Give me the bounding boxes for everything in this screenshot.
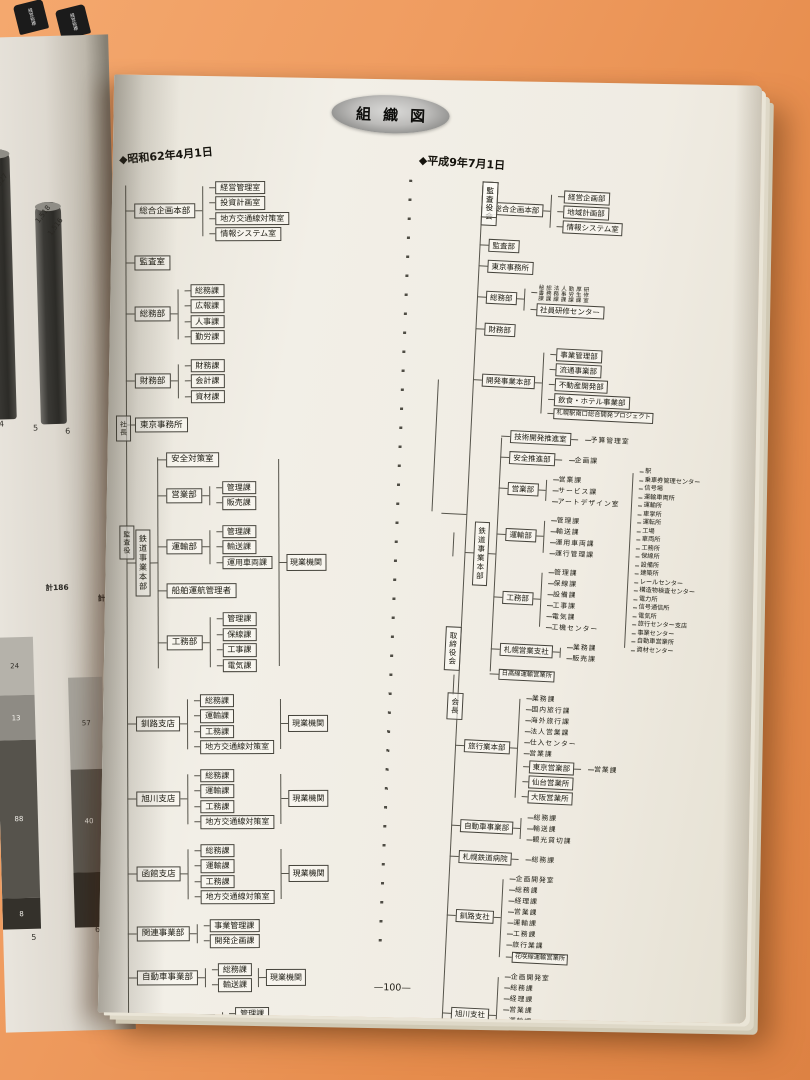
org-row: 旭川支店総務課運輸課工務課地方交通線対策室現業機関 [127, 767, 328, 830]
connector [170, 313, 177, 314]
connector [195, 210, 202, 211]
org-node: 旭川支店総務課運輸課工務課地方交通線対策室現業機関 [136, 767, 328, 830]
org-children: 管理課保線課設備課工事課電気課工機センター [538, 566, 601, 635]
org-row: 函館支店総務課運輸課工務課地方交通線対策室現業機関 [127, 842, 328, 905]
org-child-row: 保線課 [547, 579, 600, 591]
org-unit-label: 工事課 [222, 643, 256, 657]
org-child-row: 保線課 [216, 628, 256, 642]
executive-box: 監査役 [481, 181, 499, 217]
org-unit-label: 総務課 [218, 963, 252, 977]
org-unit-label: 研修室 [235, 1022, 269, 1024]
org-child-row: 地方交通線対策室 [194, 815, 274, 829]
org-node: 社員研修センター管理課研修室 [137, 1006, 269, 1024]
org-unit-label: 保線課 [222, 628, 256, 642]
org-child-row: 運輸課 [502, 1016, 571, 1024]
org-node: 開発事業本部事業管理部流通事業部不動産開発部飲食・ホテル事業部札幌駅南口総合開発… [480, 343, 657, 424]
org-group: 鉄道事業本部安全対策室営業部管理課販売課運輸部管理課輸送課運用車両課船舶運航管理… [135, 445, 326, 680]
org-row: 営業部営業課サービス課アートデザイン室 [498, 471, 621, 510]
org-child-row: 運輸課 [507, 918, 570, 930]
org-node: 安全推進部企画課 [509, 451, 598, 468]
connector [281, 798, 288, 799]
executive-box: 社長 [116, 416, 131, 442]
org-unit-label: 電気課 [552, 612, 576, 622]
org-child-row: 花咲線運輸営業所 [506, 951, 569, 965]
org-unit-label: 広報課 [190, 299, 224, 313]
org-node: 社員研修センター [536, 303, 605, 319]
org-row: 船舶運航管理者 [158, 583, 237, 598]
org-box: 安全対策室 [166, 452, 219, 467]
org-box: 財務部 [484, 322, 515, 336]
org-row: 鉄道事業本部安全対策室営業部管理課販売課運輸部管理課輸送課運用車両課船舶運航管理… [126, 445, 326, 680]
org-child-row: 総務課 [194, 694, 274, 708]
org-child-row: 大阪営業所 [521, 790, 616, 808]
org-chart-1997: 取締役会会長社長取締役監査役会監査役 総合企画本部経営企画部地域計画部情報システ… [381, 179, 763, 1024]
org-children: 管理課販売課 [209, 480, 256, 511]
org-children: 秘書課総務課法務課人事課勤労課厚生課研修室社員研修センター [523, 283, 606, 320]
org-unit-label: 経営管理室 [215, 181, 265, 195]
org-unit-label: 資材課 [190, 390, 224, 404]
org-box: 釧路支店 [136, 716, 180, 731]
org-children: 営業課 [581, 763, 618, 776]
org-node: 日高線運輸営業所 [498, 668, 555, 682]
org-unit-label: 運輸課 [201, 859, 235, 873]
org-child-row: 勤労課 [184, 330, 224, 344]
org-box: 地域計画部 [563, 205, 609, 220]
org-row: 関連事業部事業管理課開発企画課 [128, 918, 260, 949]
org-row: 監査室 [125, 255, 170, 270]
org-child-row: 予算管理室 [584, 435, 629, 446]
connector [150, 562, 157, 563]
org-unit-label: 人事課 [559, 285, 566, 302]
org-box: 流通事業部 [555, 363, 601, 378]
org-unit-label: 営業課 [509, 1005, 533, 1015]
org-chart-1987: 社長監査役 総合企画本部経営管理室投資計画室地方交通線対策室情報システム室監査室… [125, 173, 396, 1024]
org-row: 総合企画本部経営企画部地域計画部情報システム室 [480, 185, 624, 237]
chart-1987-header: ◆昭和62年4月1日 [118, 143, 213, 167]
org-children: 総務課運輸課工務課地方交通線対策室 [187, 842, 281, 904]
org-box: 旭川支店 [136, 791, 180, 806]
org-unit-label: 運行管理課 [555, 549, 594, 560]
org-box: 開発事業本部 [482, 373, 536, 389]
org-children: 事業管理部流通事業部不動産開発部飲食・ホテル事業部札幌駅南口総合開発プロジェクト [540, 346, 657, 424]
org-box: 東京事務所 [487, 260, 533, 275]
org-row: 開発事業本部事業管理部流通事業部不動産開発部飲食・ホテル事業部札幌駅南口総合開発… [471, 343, 657, 425]
org-child-row: 総務課 [194, 769, 274, 783]
org-child-row: 経営企画部 [558, 190, 625, 206]
org-node: 旅行業本部業務課国内旅行課海外旅行課法人営業課仕入センター営業課東京営業部営業課… [461, 690, 621, 808]
stacked-bar: 24 13 88 8 [0, 637, 41, 930]
org-child-row: 運輸課 [195, 859, 275, 873]
photo-background: 経営指標 経営指標 1,540 1,527 1,518 1,516 4 5 6 … [0, 0, 810, 1080]
org-children: 事業管理課開発企画課 [196, 918, 259, 949]
org-node: 監査室 [134, 255, 170, 270]
org-children: 業務課販売課 [559, 641, 596, 665]
org-node: 情報システム室 [562, 220, 623, 236]
org-unit-label: 工務課 [201, 875, 235, 889]
org-box: 東京事務所 [135, 417, 188, 432]
org-child-row: 財務課 [184, 359, 224, 373]
org-node: 監査部 [488, 239, 519, 253]
org-row: 自動車事業部総務課輸送課観光貸切課 [450, 808, 572, 847]
org-child-row: 電気課 [216, 659, 256, 673]
org-box: 監査部 [488, 239, 519, 253]
org-node: 大阪営業所 [527, 790, 573, 805]
org-node: 工務部管理課保線課工事課電気課 [167, 611, 257, 673]
org-node: 総合企画本部経営企画部地域計画部情報システム室 [489, 186, 624, 237]
org-box: 運輸部 [166, 540, 202, 555]
org-node: 不動産開発部 [555, 378, 609, 394]
org-child-row: 業務課 [567, 643, 597, 653]
org-child-row: 工事課 [546, 601, 599, 613]
org-row: 営業部管理課販売課 [157, 480, 256, 511]
org-unit-label: 総務課 [510, 983, 534, 993]
org-box: 総務部 [486, 291, 517, 305]
org-unit-label: 総務課 [531, 855, 555, 865]
org-unit-label: 総務課 [515, 885, 539, 895]
org-row: 釧路支店総務課運輸課工務課地方交通線対策室現業機関 [127, 692, 328, 755]
org-children: 管理課保線課工事課電気課 [209, 611, 256, 673]
org-unit-label: 総務課 [190, 284, 224, 298]
field-agency-box: 現業機関 [266, 968, 306, 985]
org-child-row: 管理課 [229, 1007, 269, 1021]
org-node: 経営企画部 [564, 190, 610, 205]
org-box: 船舶運航管理者 [167, 583, 237, 598]
org-box: 工務部 [502, 591, 533, 605]
org-box: 鉄道事業本部 [135, 529, 150, 596]
org-unit-label: 観光貸切課 [532, 835, 571, 846]
book-page: 組織図 ◆昭和62年4月1日 ◆平成9年7月1日 社長監査役 総合企画本部経営管… [98, 74, 762, 1023]
connector-line [452, 532, 454, 556]
org-rows: 総合企画本部経営企画部地域計画部情報システム室監査部東京事務所総務部秘書課総務課… [435, 181, 762, 1023]
org-node: 営業部管理課販売課 [166, 480, 256, 511]
org-child-row: 輸送課 [216, 540, 272, 554]
org-row: 東京事務所 [126, 417, 188, 432]
connector [279, 562, 286, 563]
connector [202, 546, 209, 547]
org-unit-label: 仕入センター [530, 738, 577, 749]
org-child-row: 工務課 [194, 800, 274, 814]
org-box: 鉄道事業本部 [472, 521, 490, 586]
org-child-row: 営業課 [508, 907, 571, 919]
org-box: 飲食・ホテル事業部 [554, 393, 630, 410]
org-row: 札幌営業支社業務課販売課 [490, 638, 596, 665]
org-box: 日高線運輸営業所 [498, 668, 555, 682]
org-unit-label: 管理課 [222, 612, 256, 626]
org-unit-label: 地方交通線対策室 [201, 890, 275, 904]
org-node: 自動車事業部総務課輸送課観光貸切課 [459, 809, 572, 847]
org-box: 札幌営業支社 [500, 643, 554, 659]
org-unit-label: 管理課 [222, 481, 256, 495]
org-box: 花咲線運輸営業所 [512, 951, 569, 965]
org-group: 鉄道事業本部技術開発推進室予算管理室安全推進部企画課営業部営業課サービス課アート… [467, 424, 703, 693]
bar-segment: 57 [68, 677, 105, 770]
org-child-row: 会計課 [184, 374, 224, 388]
org-row: 運輸部管理課輸送課運用車両課運行管理課 [495, 512, 596, 561]
org-child-row: 工務課 [507, 929, 570, 941]
org-node: 札幌鉄道病院総務課 [458, 850, 555, 868]
org-child-row: 情報システム室 [209, 227, 289, 241]
org-unit-label: 電気課 [222, 659, 256, 673]
org-row: 自動車事業部総務課輸送課現業機関 [128, 961, 306, 993]
org-unit-label: 運輸課 [200, 784, 234, 798]
org-child-row: 工事課 [216, 643, 256, 657]
org-box: 工務部 [167, 635, 203, 650]
org-node: 技術開発推進室予算管理室 [510, 430, 630, 449]
org-child-row: 総務課 [525, 855, 555, 865]
connector-line [441, 513, 466, 515]
org-children: 業務課国内旅行課海外旅行課法人営業課仕入センター営業課東京営業部営業課仙台営業所… [514, 692, 621, 808]
org-row: 財務部 [475, 322, 515, 337]
org-child-row: 営業課 [552, 475, 620, 487]
org-unit-label: 厚生課 [574, 286, 581, 303]
org-child-row: 観光貸切課 [526, 835, 571, 846]
org-row: 社員研修センター管理課研修室 [128, 1006, 269, 1024]
org-child-row: 社員研修センター [530, 302, 605, 319]
org-child-row: 投資計画室 [209, 196, 289, 210]
org-children: 管理課輸送課運用車両課運行管理課 [542, 514, 596, 560]
org-children: 総務課運輸課工務課地方交通線対策室 [187, 767, 281, 829]
org-unit-label: 開発企画課 [209, 934, 259, 948]
org-child-row: 地方交通線対策室 [194, 740, 274, 754]
org-row: 財務部財務課会計課資材課 [126, 358, 225, 405]
org-box: 財務部 [135, 374, 171, 389]
org-unit-label: 販売課 [222, 496, 256, 510]
org-unit-label: 業務課 [573, 643, 597, 653]
org-unit-label: 企画開発室 [511, 972, 550, 983]
org-node: 船舶運航管理者 [167, 583, 237, 598]
connector [215, 1021, 222, 1022]
org-chart-title-badge: 組織図 [331, 93, 450, 136]
org-child-row: 旅行業課 [506, 940, 569, 952]
org-box: 営業部 [507, 482, 538, 496]
org-unit-label: 法務課 [551, 285, 558, 302]
org-row: 鉄道事業本部技術開発推進室予算管理室安全推進部企画課営業部営業課サービス課アート… [458, 424, 702, 693]
org-row: 総合企画本部経営管理室投資計画室地方交通線対策室情報システム室 [125, 179, 289, 242]
org-node: 工務部管理課保線課設備課工事課電気課工機センター [501, 564, 601, 635]
org-unit-label: 国内旅行課 [531, 705, 570, 716]
org-child-row: 運輸課 [194, 784, 274, 798]
org-box: 総合企画本部 [134, 203, 195, 218]
org-children: 総務課 [518, 853, 555, 866]
org-box: 情報システム室 [562, 220, 623, 236]
org-children: 総務課広報課人事課勤労課 [177, 283, 224, 345]
org-box: 社員研修センター [137, 1014, 215, 1024]
connector [259, 977, 266, 978]
org-node: 財務部財務課会計課資材課 [135, 358, 225, 405]
org-node: 事業管理部 [556, 348, 602, 363]
org-node: 札幌営業支社業務課販売課 [499, 638, 596, 665]
org-unit-label: 旅行業課 [512, 940, 544, 951]
org-unit-label: 工務課 [513, 929, 537, 939]
org-row: 安全推進部企画課 [500, 450, 598, 468]
org-unit-label: 工事課 [552, 601, 576, 611]
org-children: 財務課会計課資材課 [177, 358, 224, 405]
org-child-row: 輸送課 [212, 978, 252, 992]
org-children: 総務課運輸課工務課地方交通線対策室 [187, 692, 281, 754]
org-unit-label: 工機センター [551, 623, 598, 634]
org-children: 管理課研修室 [222, 1006, 269, 1024]
bar-segment: 13 [0, 695, 36, 741]
org-box: 大阪営業所 [527, 790, 573, 805]
org-child-row: 情報システム室 [556, 220, 623, 236]
org-unit-label: 管理課 [556, 516, 580, 526]
org-unit-label: 輸送課 [556, 527, 580, 537]
org-unit-label: 経理課 [510, 994, 534, 1004]
connector [180, 798, 187, 799]
org-row: 釧路支社企画開発室総務課経理課営業課運輸課工務課旅行業課花咲線運輸営業所 [445, 870, 573, 966]
org-child-row: 資材課 [184, 390, 224, 404]
org-child-row: 総務課 [504, 983, 573, 995]
org-unit-label: 営業課 [514, 907, 538, 917]
org-child-row: 地域計画部 [557, 205, 624, 221]
org-box: 営業部 [166, 488, 202, 503]
org-child-row: 企画開発室 [509, 874, 572, 886]
org-child-row: 総務課 [527, 813, 572, 824]
org-unit-label: 地方交通線対策室 [215, 211, 289, 225]
org-unit-label: 工務課 [200, 725, 234, 739]
org-unit-label: 運輸課 [200, 709, 234, 723]
org-child-row: 総務課 [194, 844, 274, 858]
connector [503, 1020, 509, 1021]
connector [202, 495, 209, 496]
org-row: 工務部管理課保線課設備課工事課電気課工機センター [492, 564, 601, 635]
org-unit-label: アートデザイン室 [557, 497, 619, 509]
bar-segment: 8 [2, 898, 41, 930]
axis-tick: 5 [31, 933, 36, 942]
org-unit-label: 運用車両課 [555, 538, 594, 549]
org-node: 関連事業部事業管理課開発企画課 [137, 918, 260, 949]
org-rows: 安全対策室営業部管理課販売課運輸部管理課輸送課運用車両課船舶運航管理者工務部管理… [157, 445, 279, 680]
org-unit-label: 投資計画室 [215, 196, 265, 210]
org-node: 東京事務所 [135, 417, 188, 432]
station-list: 駅乗車券管理センター信号場運輸車両所運輸所車掌所運転所工場車両所工務所保線所設備… [624, 467, 701, 657]
bar-segment: 88 [0, 740, 40, 899]
axis-tick: 5 [33, 423, 38, 432]
org-rows: 総合企画本部経営管理室投資計画室地方交通線対策室情報システム室監査室総務部総務課… [125, 173, 396, 1024]
connector [170, 381, 177, 382]
org-box: 安全推進部 [509, 451, 555, 466]
connector [180, 723, 187, 724]
org-child-row: 開発企画課 [203, 934, 259, 948]
org-row: 日高線運輸営業所 [489, 668, 555, 682]
executive-box: 監査役 [119, 525, 134, 559]
org-node: 仙台営業所 [528, 775, 574, 790]
org-unit-label: 運輸課 [508, 1016, 532, 1023]
org-child-row: 管理課 [216, 481, 256, 495]
org-node: 札幌駅南口総合開発プロジェクト [553, 408, 654, 424]
org-box: 釧路支社 [455, 909, 494, 924]
org-child-row: 電気課 [546, 612, 599, 624]
org-child-row: 設備課 [547, 590, 600, 602]
field-agency-box: 現業機関 [288, 715, 328, 732]
org-box: 経営企画部 [564, 190, 610, 205]
org-node: 運輸部管理課輸送課運用車両課 [166, 524, 272, 571]
org-row: 工務部管理課保線課工事課電気課 [158, 611, 257, 673]
org-children: 経営管理室投資計画室地方交通線対策室情報システム室 [202, 179, 289, 241]
org-children: 総務課輸送課 [205, 962, 259, 993]
org-row: 総務部総務課広報課人事課勤労課 [126, 283, 225, 345]
org-child-row: 運用車両課 [549, 538, 594, 549]
connector [189, 933, 196, 934]
connector [202, 642, 209, 643]
field-agency-box: 現業機関 [289, 865, 329, 882]
org-unit-label: 財務課 [190, 359, 224, 373]
org-box: 事業管理部 [556, 348, 602, 363]
org-row: 技術開発推進室予算管理室 [501, 429, 630, 448]
org-row: 監査部 [479, 238, 519, 253]
org-children: 営業課サービス課アートデザイン室 [544, 473, 620, 510]
org-box: 札幌駅南口総合開発プロジェクト [553, 408, 654, 424]
axis-tick: 4 [0, 419, 4, 428]
org-unit-label: 輸送課 [533, 824, 557, 834]
org-node: 運輸部管理課輸送課運用車両課運行管理課 [504, 512, 596, 560]
org-unit-label: 保線課 [553, 579, 577, 589]
connector [198, 977, 205, 978]
org-box: 総合企画本部 [490, 202, 544, 218]
org-child-row: 総務課 [509, 885, 572, 897]
connector [281, 723, 288, 724]
org-child-row: 輸送課 [550, 527, 595, 538]
org-unit-label: 勤労課 [566, 286, 573, 303]
org-unit-label: 設備課 [553, 590, 577, 600]
org-child-row: 人事課 [184, 315, 224, 329]
org-node: 総務部総務課広報課人事課勤労課 [135, 283, 225, 345]
org-unit-label: 管理課 [222, 525, 256, 539]
org-unit-label: 事業管理課 [209, 919, 259, 933]
org-node: 安全対策室 [166, 452, 219, 467]
org-box: 関連事業部 [137, 926, 190, 941]
executive-box: 取締役会 [444, 626, 462, 671]
org-box: 不動産開発部 [555, 378, 609, 394]
org-unit-label: 会計課 [190, 374, 224, 388]
org-unit-label: 総務課 [544, 285, 551, 302]
org-box: 旅行業本部 [464, 739, 510, 754]
org-child-row: 運用車両課 [216, 556, 272, 570]
org-children: 管理課輸送課運用車両課 [209, 524, 272, 571]
org-unit-label: 総務課 [200, 769, 234, 783]
org-child-row: 管理課 [216, 525, 272, 539]
org-children: 予算管理室 [577, 434, 629, 448]
org-child-row: 工機センター [545, 623, 598, 635]
org-child-row: 工務課 [195, 875, 275, 889]
org-child-row: アートデザイン室 [551, 497, 619, 509]
org-child-row: 工務課 [194, 725, 274, 739]
org-children: 企画開発室総務課経理課営業課運輸課工務課旅行業課宗谷北線運輸営業所 [494, 971, 574, 1024]
org-row: 札幌鉄道病院総務課 [449, 849, 555, 867]
org-unit-label: サービス課 [558, 486, 597, 497]
org-unit-label: 運輸課 [513, 918, 537, 928]
org-box: 総務部 [135, 306, 171, 321]
org-box: 技術開発推進室 [510, 430, 571, 446]
org-child-row: 経理課 [508, 896, 571, 908]
org-child-row: 管理課 [550, 516, 595, 527]
org-node: 釧路支社企画開発室総務課経理課営業課運輸課工務課旅行業課花咲線運輸営業所 [454, 871, 573, 966]
org-unit-label: 法人営業課 [530, 727, 569, 738]
org-box: 自動車事業部 [460, 819, 514, 835]
org-node: 流通事業部 [555, 363, 601, 378]
org-node: 釧路支店総務課運輸課工務課地方交通線対策室現業機関 [136, 692, 328, 755]
org-unit-label: 営業課 [594, 765, 618, 775]
org-node: 財務部 [484, 322, 515, 336]
org-node: 東京事務所 [487, 260, 533, 275]
field-agency-box: 現業機関 [288, 790, 328, 807]
org-unit-label: 工務課 [200, 800, 234, 814]
org-unit-label: 業務課 [532, 694, 556, 704]
org-box: 自動車事業部 [137, 970, 198, 985]
vertical-label-cluster: 秘書課総務課法務課人事課勤労課厚生課研修室 [536, 284, 588, 303]
org-child-row: 販売課 [566, 654, 596, 664]
org-box: 函館支店 [137, 866, 181, 881]
